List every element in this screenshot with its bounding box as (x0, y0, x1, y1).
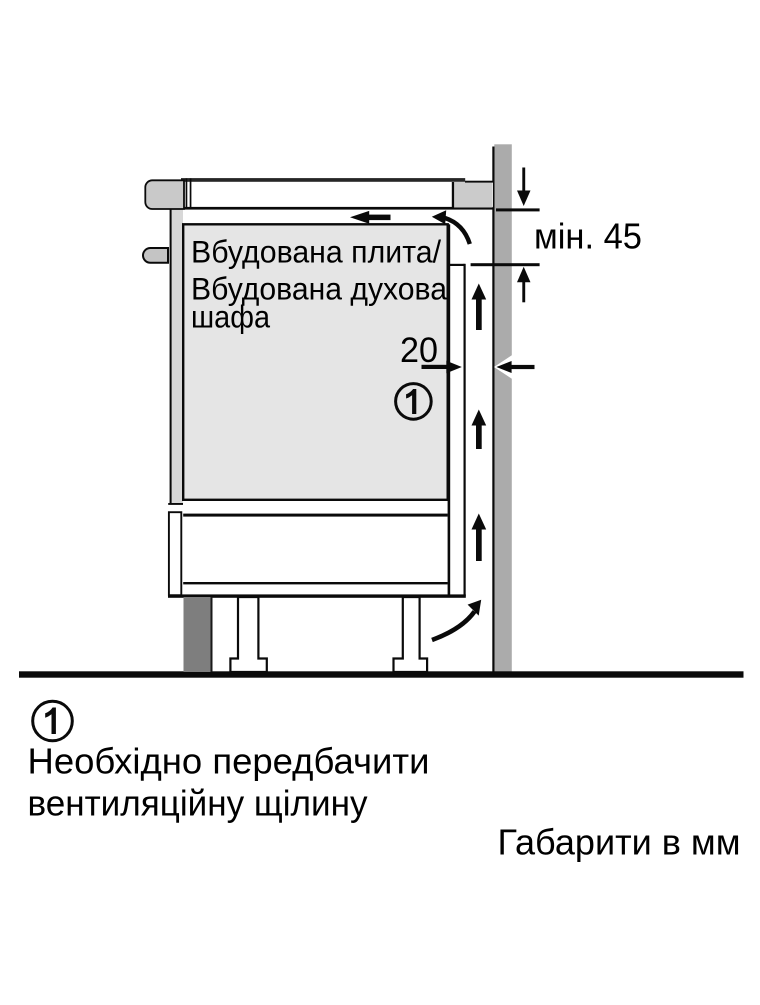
svg-text:мін. 45: мін. 45 (534, 216, 642, 257)
svg-text:шафа: шафа (191, 298, 270, 334)
svg-text:20: 20 (400, 331, 438, 370)
svg-text:Габарити в мм: Габарити в мм (498, 821, 741, 862)
svg-text:Вбудована плита/: Вбудована плита/ (191, 233, 441, 269)
svg-text:Необхідно передбачити: Необхідно передбачити (28, 740, 430, 781)
svg-text:вентиляційну щілину: вентиляційну щілину (28, 783, 369, 824)
